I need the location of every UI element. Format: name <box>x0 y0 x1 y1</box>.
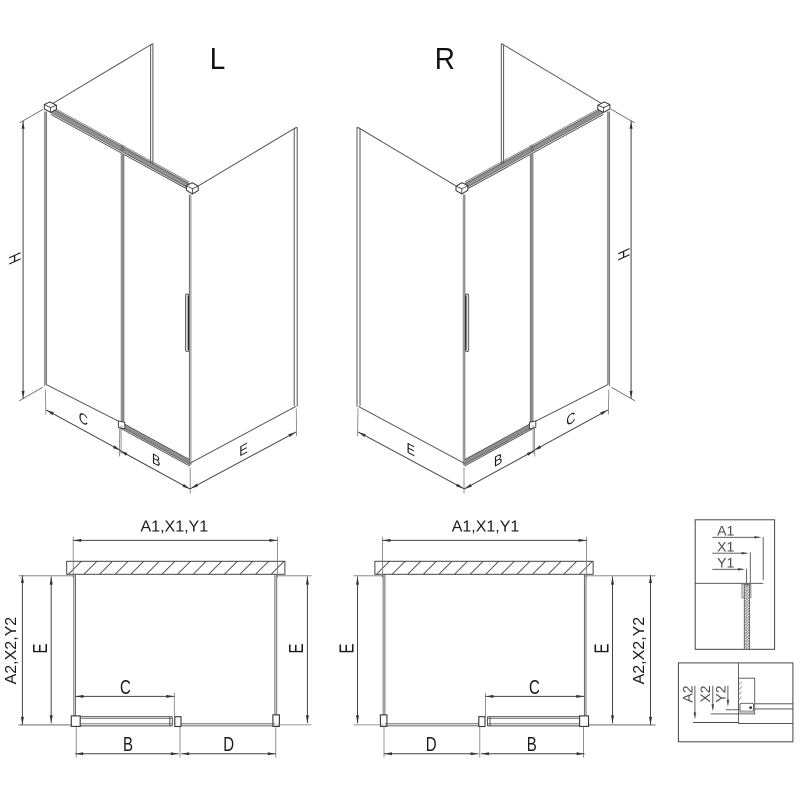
svg-text:L: L <box>210 42 226 77</box>
svg-text:D: D <box>223 733 234 756</box>
svg-text:C: C <box>529 676 540 699</box>
svg-text:E: E <box>29 643 52 653</box>
svg-text:Y2: Y2 <box>712 685 728 702</box>
svg-text:E: E <box>590 643 613 653</box>
svg-text:Y1: Y1 <box>717 555 734 571</box>
svg-text:X2: X2 <box>697 685 713 702</box>
svg-text:A2,X2,Y2: A2,X2,Y2 <box>3 617 20 685</box>
svg-text:R: R <box>435 42 455 77</box>
svg-text:A1: A1 <box>717 523 734 539</box>
svg-text:B: B <box>123 733 133 756</box>
svg-text:E: E <box>285 643 308 653</box>
svg-text:E: E <box>335 643 358 653</box>
svg-text:A2: A2 <box>680 685 696 702</box>
svg-text:B: B <box>527 733 537 756</box>
svg-text:A2,X2,Y2: A2,X2,Y2 <box>631 617 648 685</box>
svg-text:D: D <box>426 733 437 756</box>
svg-text:C: C <box>120 676 131 699</box>
svg-text:X1: X1 <box>717 539 734 555</box>
svg-text:A1,X1,Y1: A1,X1,Y1 <box>140 519 208 536</box>
svg-text:A1,X1,Y1: A1,X1,Y1 <box>452 519 520 536</box>
